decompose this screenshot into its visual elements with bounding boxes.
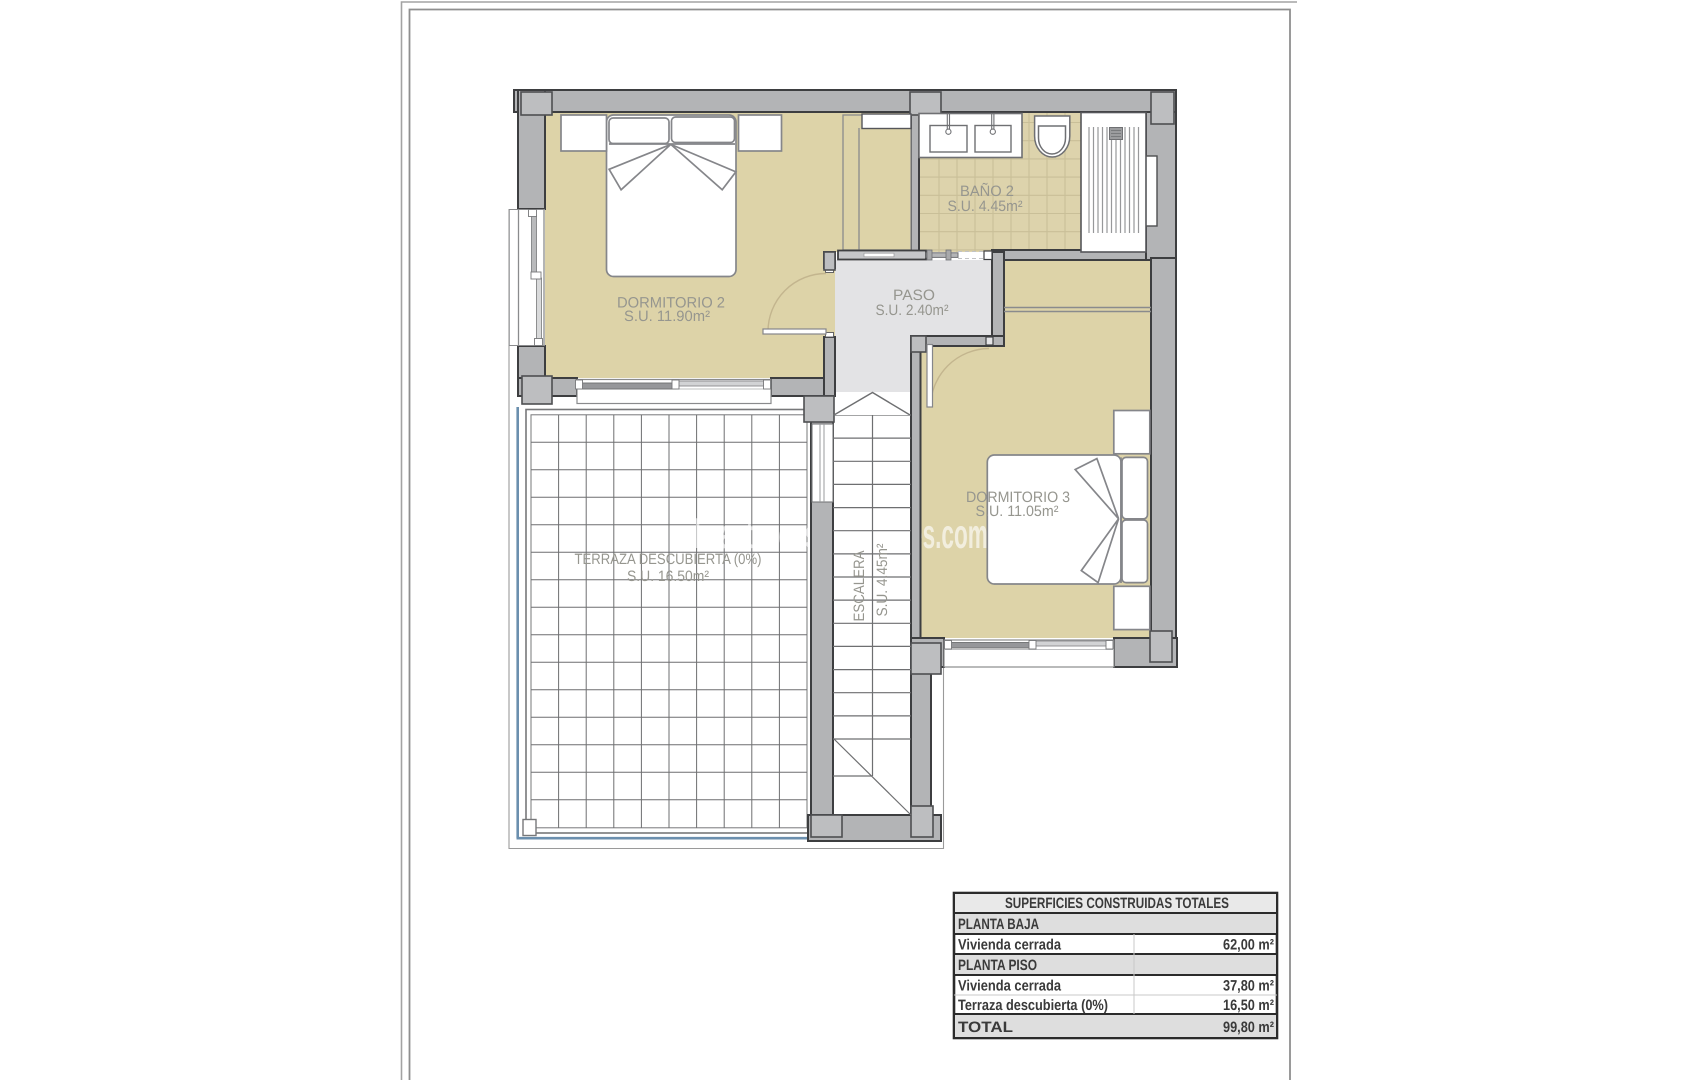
svg-text:S.U. 4.45m²: S.U. 4.45m²: [948, 198, 1023, 215]
svg-text:S.U. 2.40m²: S.U. 2.40m²: [876, 302, 949, 319]
svg-text:Vivienda cerrada: Vivienda cerrada: [958, 978, 1062, 995]
svg-text:62,00 m²: 62,00 m²: [1223, 937, 1274, 954]
svg-text:S.U. 11.05m²: S.U. 11.05m²: [976, 503, 1059, 520]
svg-text:99,80 m²: 99,80 m²: [1223, 1019, 1274, 1036]
svg-text:ESCALERA: ESCALERA: [851, 551, 868, 622]
svg-text:SUPERFICIES CONSTRUIDAS TOTALE: SUPERFICIES CONSTRUIDAS TOTALES: [1005, 895, 1229, 912]
svg-text:PLANTA PISO: PLANTA PISO: [958, 957, 1037, 974]
svg-text:PLANTA BAJA: PLANTA BAJA: [958, 916, 1039, 933]
svg-text:16,50 m²: 16,50 m²: [1223, 997, 1274, 1014]
svg-text:Vivienda cerrada: Vivienda cerrada: [958, 937, 1062, 954]
svg-text:S.U. 16.50m²: S.U. 16.50m²: [627, 568, 709, 585]
svg-text:37,80 m²: 37,80 m²: [1223, 978, 1274, 995]
svg-text:alicantecoastproperties.com: alicantecoastproperties.com: [682, 511, 988, 557]
svg-text:S.U. 4.45m²: S.U. 4.45m²: [874, 544, 891, 617]
svg-text:TOTAL: TOTAL: [958, 1019, 1013, 1036]
svg-text:Terraza descubierta (0%): Terraza descubierta (0%): [958, 997, 1108, 1014]
svg-text:S.U. 11.90m²: S.U. 11.90m²: [624, 308, 710, 325]
